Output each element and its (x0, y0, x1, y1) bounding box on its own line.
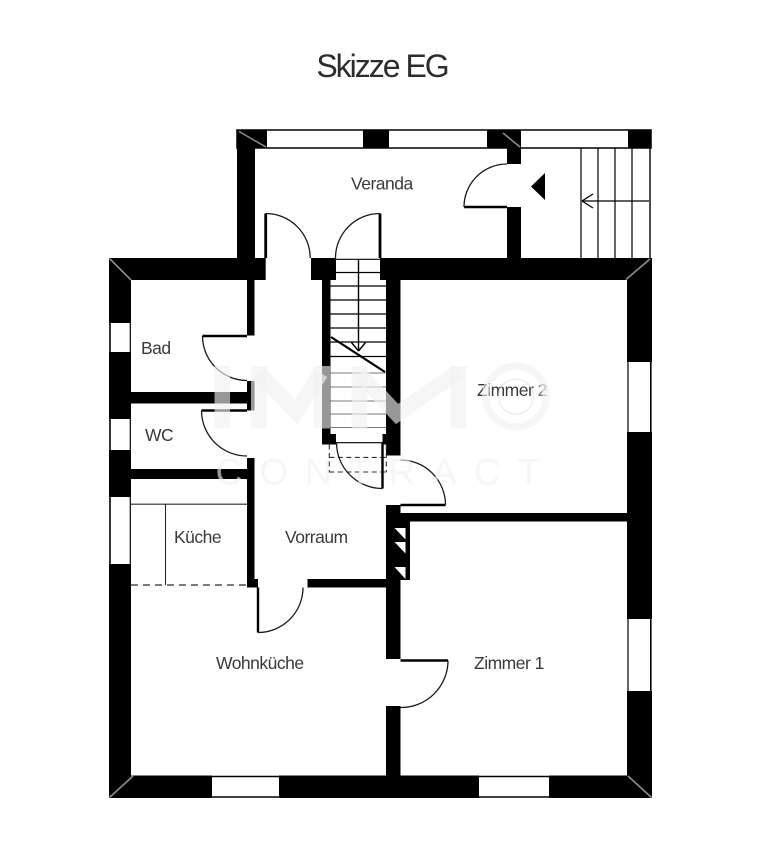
svg-text:Bad: Bad (141, 338, 171, 358)
svg-text:Zimmer 1: Zimmer 1 (474, 653, 544, 673)
svg-text:Veranda: Veranda (351, 174, 413, 194)
svg-text:CONTRACT: CONTRACT (216, 452, 558, 493)
svg-text:WC: WC (145, 425, 173, 445)
svg-text:Skizze EG: Skizze EG (316, 48, 447, 84)
svg-text:Wohnküche: Wohnküche (216, 653, 304, 673)
svg-text:Vorraum: Vorraum (285, 527, 348, 547)
svg-text:Küche: Küche (174, 527, 221, 547)
